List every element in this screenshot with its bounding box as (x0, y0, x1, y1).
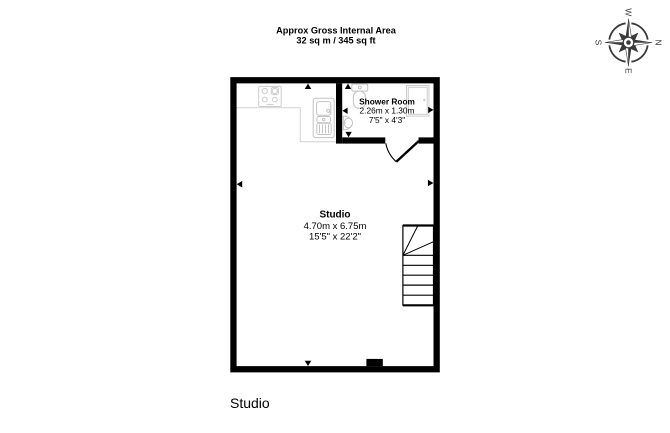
svg-text:Studio: Studio (319, 210, 350, 221)
svg-text:Approx Gross Internal Area: Approx Gross Internal Area (276, 26, 397, 36)
svg-text:2.26m x 1.30m: 2.26m x 1.30m (360, 106, 415, 116)
svg-text:W: W (624, 8, 634, 16)
svg-text:E: E (624, 68, 634, 74)
svg-text:Studio: Studio (230, 395, 270, 411)
svg-text:32 sq m / 345 sq ft: 32 sq m / 345 sq ft (296, 35, 375, 45)
svg-text:N: N (654, 39, 664, 45)
svg-text:S: S (593, 40, 603, 46)
svg-text:15'5" x 22'2": 15'5" x 22'2" (309, 232, 361, 243)
svg-text:7'5" x 4'3": 7'5" x 4'3" (369, 115, 405, 125)
